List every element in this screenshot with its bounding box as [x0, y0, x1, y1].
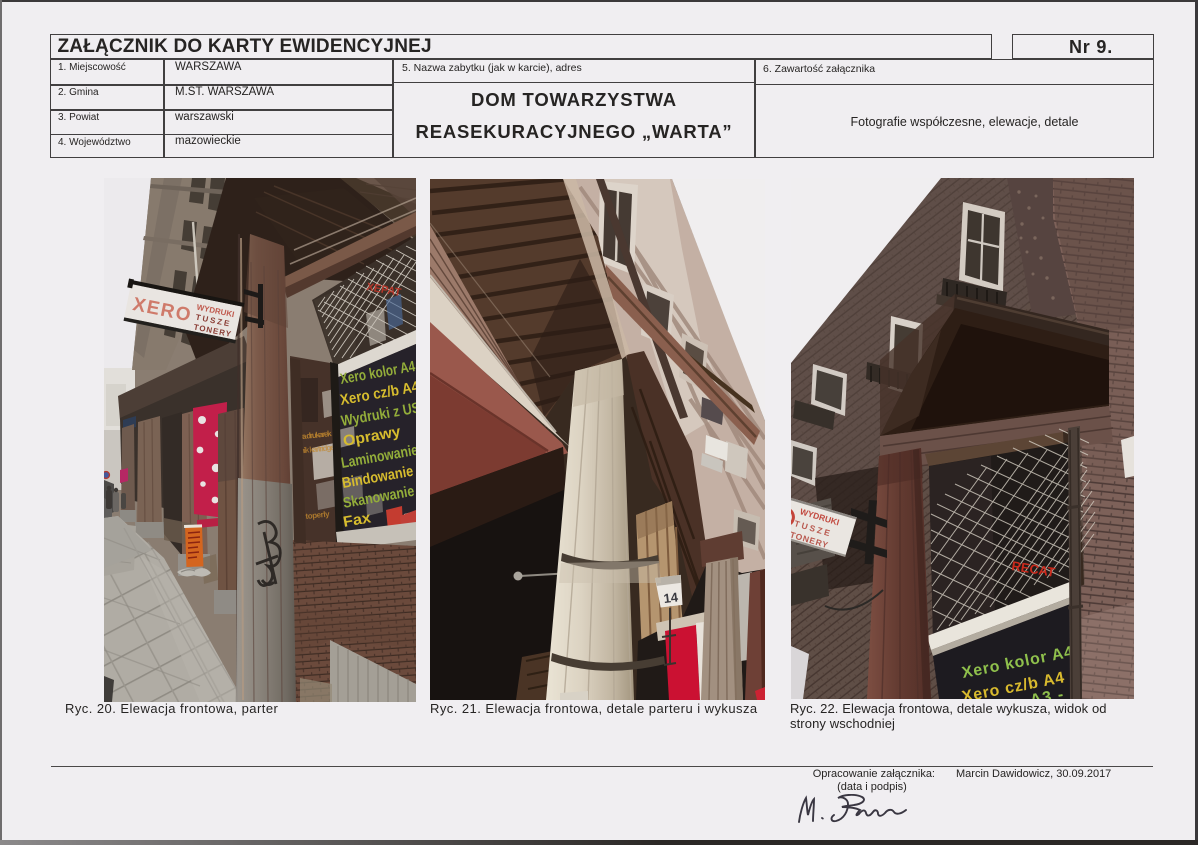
svg-text:14: 14	[663, 589, 680, 606]
